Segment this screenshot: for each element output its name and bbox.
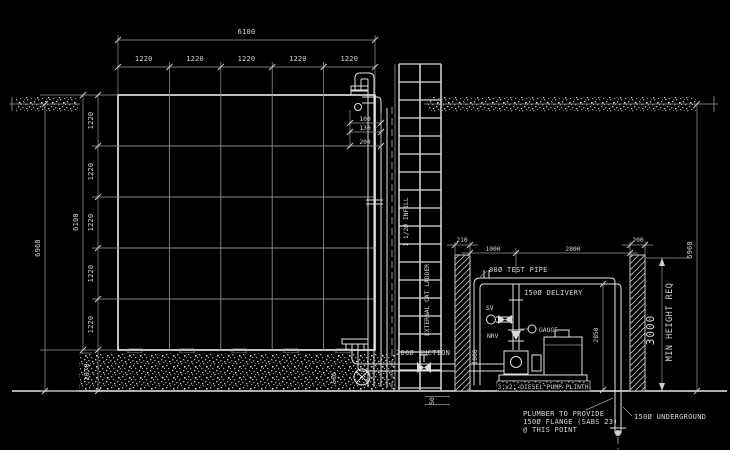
dim-left-seg5: 1220 xyxy=(87,316,95,334)
dim-top-seg5: 1220 xyxy=(340,55,358,63)
external-cat-ladder-label: EXTERNAL CAT LADDER xyxy=(424,264,431,336)
plumber-note-line2: 150Ø FLANGE (SABS 23) xyxy=(523,418,618,426)
suction-label: 200Ø SUCTION xyxy=(396,349,450,357)
dim-room-210: 210 xyxy=(456,237,468,244)
dim-left-tank-text: 6100 xyxy=(72,213,80,231)
dim-top-seg4: 1220 xyxy=(289,55,307,63)
nrv-label: NRV xyxy=(487,333,499,340)
dim-top-seg2: 1220 xyxy=(186,55,204,63)
drawing-svg: 6100 1220 1220 1220 1220 1220 6960 xyxy=(0,0,730,450)
test-pipe-label: 80Ø TEST PIPE xyxy=(489,266,548,274)
dim-top-seg3: 1220 xyxy=(238,55,256,63)
dim-left-tank-height: 6100 xyxy=(72,92,86,353)
suction-pipework: 200Ø SUCTION 580 50 xyxy=(331,339,504,405)
dim-left-seg4: 1220 xyxy=(87,265,95,283)
dim-room-200: 200 xyxy=(632,237,644,244)
suction-drop-dim: 580 xyxy=(331,372,338,384)
dim-left-extensions xyxy=(40,95,118,391)
min-height-req-label: MIN HEIGHT REQ xyxy=(665,283,675,362)
dim-nozzle-stack: 100 130 200 xyxy=(347,110,384,149)
suction-height-dim: 1000 xyxy=(472,349,479,364)
dim-top-segments: 1220 1220 1220 1220 1220 xyxy=(115,55,378,95)
plumber-note-line1: PLUMBER TO PROVIDE xyxy=(523,410,604,418)
dim-left-seg2: 1220 xyxy=(87,163,95,181)
dim-left-plinth-text: 1070 xyxy=(83,363,91,381)
cad-canvas[interactable]: 6100 1220 1220 1220 1220 1220 6960 xyxy=(0,0,730,450)
dim-left-segments: 1220 1220 1220 1220 1220 1070 xyxy=(83,92,101,394)
dim-pump-room: 210 1000 2800 200 xyxy=(447,237,653,274)
ladder-infill-label: 1 1/2Ø INFILL xyxy=(402,197,410,246)
dim-nozzle-100: 100 xyxy=(359,116,371,123)
dim-left-seg1: 1220 xyxy=(87,112,95,130)
dim-nozzle-130: 130 xyxy=(359,125,371,132)
dim-top-overall-text: 6100 xyxy=(238,28,256,36)
delivery-label: 150Ø DELIVERY xyxy=(524,289,583,297)
sv-label: SV xyxy=(486,305,494,312)
cat-ladder: 1 1/2Ø INFILL EXTERNAL CAT LADDER xyxy=(392,64,441,390)
dim-nozzle-200: 200 xyxy=(359,139,371,146)
dim-right-overall: 6960 xyxy=(686,101,700,394)
tank-plinth xyxy=(79,353,395,390)
dim-2850-text: 2850 xyxy=(593,327,600,342)
screed-dim: 50 xyxy=(429,397,436,405)
delivery-pipework: 80Ø TEST PIPE 150Ø DELIVERY xyxy=(474,266,621,433)
dim-room-2800: 2800 xyxy=(565,246,580,253)
dim-left-overall-text: 6960 xyxy=(34,239,42,257)
pump-plinth-label: 3'x2' DIESEL PUMP PLINTH xyxy=(498,384,589,391)
dim-delivery-height: 2850 xyxy=(593,281,606,393)
tank-panel-grid xyxy=(118,95,375,350)
dim-right-overall-text: 6960 xyxy=(686,241,694,259)
dim-room-1000: 1000 xyxy=(485,246,500,253)
underground-label: 150Ø UNDERGROUND xyxy=(634,413,706,421)
dim-3000-text: 3000 xyxy=(644,315,657,346)
dim-top-seg1: 1220 xyxy=(135,55,153,63)
plumber-note-line3: @ THIS POINT xyxy=(523,426,578,434)
dim-min-height-req: 3000 MIN HEIGHT REQ xyxy=(644,258,690,391)
dim-left-seg3: 1220 xyxy=(87,214,95,232)
ground-right-band xyxy=(424,96,718,112)
